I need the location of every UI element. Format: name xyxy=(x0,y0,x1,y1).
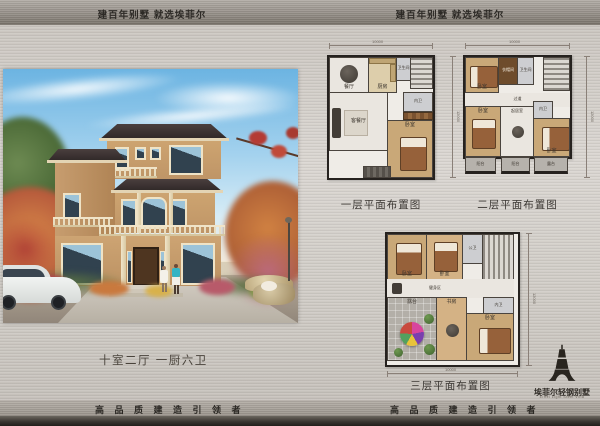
dimension-line xyxy=(528,233,529,366)
red-leaves xyxy=(271,145,287,158)
floor-plan-1: 餐厅 厨房 卫生间 客餐厅 内卫 卧室 xyxy=(327,55,435,180)
shrub xyxy=(424,344,435,355)
red-leaves xyxy=(249,131,267,145)
parasol xyxy=(400,322,424,346)
room-bedroom: 卧室 xyxy=(387,120,433,178)
room-bedroom: 卧室 xyxy=(465,106,501,157)
dimension-line xyxy=(586,56,587,178)
car-wheel xyxy=(3,295,16,310)
footer-slogan-right: 高 品 质 建 造 引 领 者 xyxy=(390,403,502,416)
entry-door xyxy=(133,247,159,286)
top-slogan-right: 建百年别墅 就选埃菲尔 xyxy=(395,7,505,21)
villa-rendering-photo xyxy=(3,69,298,323)
dimension-label: 10000 xyxy=(509,39,520,44)
cloud xyxy=(153,81,298,115)
floor-plan-2-body: 卧室 衣帽间 卫生间 过道 卧室 起居室 内卫 xyxy=(463,55,572,159)
room-bedroom: 卧室 xyxy=(387,234,427,280)
room-sitting: 起居室 xyxy=(500,106,534,157)
stairwell xyxy=(543,57,570,91)
floor-plan-2: 卧室 衣帽间 卫生间 过道 卧室 起居室 内卫 xyxy=(463,55,572,182)
corridor: 过道 xyxy=(465,93,570,107)
caption-floor-2: 二层平面布置图 xyxy=(463,197,572,212)
dimension-label: 10000 xyxy=(445,367,456,372)
hallway xyxy=(482,279,514,298)
top-slogan-left: 建百年别墅 就选埃菲尔 xyxy=(97,7,207,21)
room-bathroom: 卫生间 xyxy=(396,57,411,81)
room-living: 客餐厅 xyxy=(329,92,388,151)
dimension-line xyxy=(329,45,433,46)
balcony: 阳台 xyxy=(465,157,496,174)
window xyxy=(121,199,137,227)
dimension-line xyxy=(452,56,453,178)
room-ensuite: 内卫 xyxy=(533,101,553,119)
floor-plan-3: 卧室 卧室 公卫 健身区 露台 书房 内卫 xyxy=(385,232,520,367)
red-leaves xyxy=(286,127,298,139)
dimension-label: 10000 xyxy=(372,39,383,44)
dimension-label: 12000 xyxy=(456,111,461,122)
dimension-label: 12000 xyxy=(590,111,595,122)
room-bedroom: 卧室 xyxy=(466,313,514,361)
white-car xyxy=(3,263,81,311)
window xyxy=(171,199,187,227)
room-dining: 餐厅 xyxy=(329,57,369,93)
top-metal-band xyxy=(0,0,600,25)
room-bedroom: 卧室 xyxy=(533,118,570,157)
terrace: 露台 xyxy=(534,157,568,174)
terrace: 露台 xyxy=(387,297,437,361)
tower-window xyxy=(63,193,81,219)
caption-floor-3: 三层平面布置图 xyxy=(385,378,516,393)
entry-column xyxy=(121,236,126,286)
lamp-post xyxy=(288,221,290,281)
dimension-line xyxy=(387,373,518,374)
footer-slogan-left: 高 品 质 建 造 引 领 者 xyxy=(95,403,207,416)
entry-mat xyxy=(363,166,391,178)
room-bedroom: 卧室 xyxy=(465,57,499,93)
person-walking xyxy=(172,264,180,294)
dimension-label: 12000 xyxy=(532,293,537,304)
room-study: 书房 xyxy=(436,297,467,361)
stairwell xyxy=(482,234,514,280)
chair-cushion xyxy=(261,281,277,291)
flower-bush xyxy=(89,281,129,296)
shrub xyxy=(424,314,434,324)
car-wheel xyxy=(51,295,66,310)
room-kitchen: 厨房 xyxy=(368,57,397,93)
room-bathroom: 卫生间 xyxy=(517,57,534,85)
room-bedroom: 卧室 xyxy=(426,234,463,280)
person-walking xyxy=(160,266,168,294)
room-cloakroom: 衣帽间 xyxy=(498,57,518,85)
unit-spec-text: 十室二厅 一厨六卫 xyxy=(99,352,208,368)
balcony-door xyxy=(169,145,203,175)
balcony: 阳台 xyxy=(501,157,530,174)
gym-area: 健身区 xyxy=(387,279,483,298)
brand-name-en: Eiffel Light Steel Villa xyxy=(527,395,597,399)
room-ensuite: 内卫 xyxy=(483,297,514,314)
brochure-page: 建百年别墅 就选埃菲尔 建百年别墅 就选埃菲尔 xyxy=(0,0,600,426)
sidelight-window xyxy=(127,251,132,283)
wardrobe xyxy=(403,112,433,120)
window xyxy=(135,147,146,160)
balcony-railing xyxy=(99,225,225,236)
caption-floor-1: 一层平面布置图 xyxy=(327,197,435,212)
bottom-dark-edge xyxy=(0,416,600,426)
shrub xyxy=(394,348,403,357)
stairwell xyxy=(410,57,433,89)
window xyxy=(150,147,161,160)
room-bathroom: 公卫 xyxy=(462,234,483,264)
lamp-head xyxy=(285,217,292,223)
flower-bush xyxy=(199,279,235,295)
dimension-line xyxy=(465,45,570,46)
flower-bush xyxy=(145,285,173,297)
room-ensuite: 内卫 xyxy=(403,92,433,112)
eiffel-tower-icon xyxy=(547,344,577,386)
